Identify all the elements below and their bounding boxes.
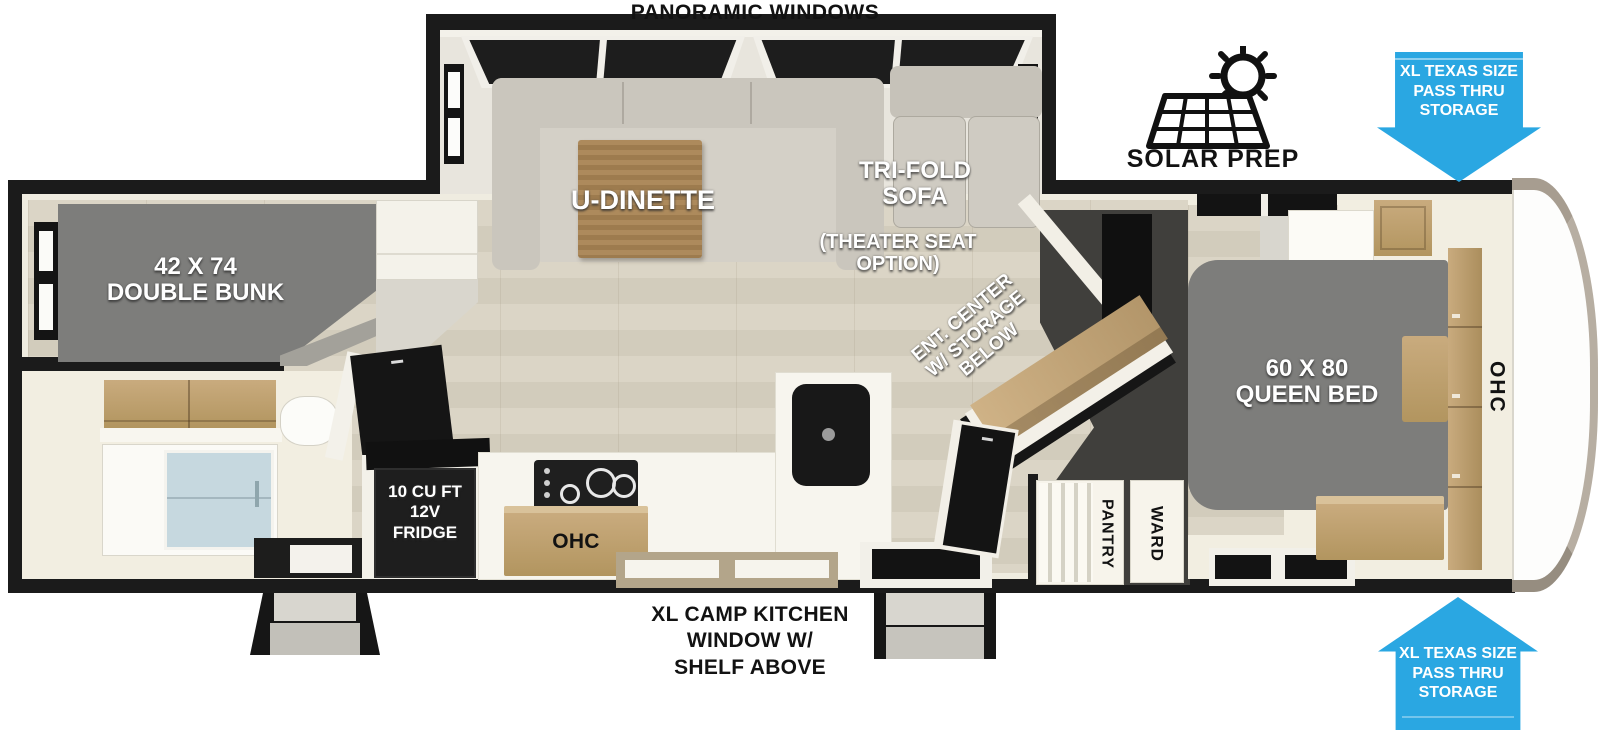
bed-console: [1402, 336, 1448, 422]
solar-panel-icon: [1145, 46, 1285, 150]
front-cap: [1512, 178, 1598, 592]
camp-kitchen-window: [616, 552, 838, 588]
u-dinette-label: U-DINETTE: [518, 186, 768, 216]
bedroom-vanity-side: [1260, 216, 1288, 264]
entry-steps-rear: [250, 593, 380, 655]
queen-bed-label: 60 X 80 QUEEN BED: [1207, 356, 1407, 409]
fridge-top: [366, 438, 491, 470]
cooktop: [534, 460, 638, 510]
bathroom-cabinets: [104, 380, 276, 428]
wall-top-left: [8, 180, 440, 194]
tri-fold-sofa-back: [890, 66, 1042, 118]
pantry-shelves: [1039, 483, 1093, 582]
bedroom-ohc-top: [1374, 200, 1432, 256]
bunk-window: [34, 222, 58, 340]
kitchen-sink: [792, 384, 870, 486]
bath-floor-mat: [254, 538, 370, 578]
ward-label: WARD: [1146, 491, 1167, 577]
pass-thru-top-label: XL TEXAS SIZE PASS THRU STORAGE: [1385, 62, 1533, 121]
wall-left: [8, 180, 22, 593]
pass-thru-bottom-label: XL TEXAS SIZE PASS THRU STORAGE: [1384, 644, 1532, 703]
faucet-icon: [822, 428, 835, 441]
bathroom-counter: [100, 428, 282, 442]
wall-top-right: [1042, 180, 1515, 194]
fridge-label-line1: 10 CU FT: [376, 482, 474, 502]
bedroom-vanity: [1288, 210, 1374, 266]
pantry: PANTRY: [1036, 480, 1124, 585]
theater-seat-option-label: (THEATER SEAT OPTION): [800, 231, 996, 275]
fridge-label-line3: FRIDGE: [376, 523, 474, 543]
bunk-cabinet: [376, 200, 478, 280]
camp-kitchen-label: XL CAMP KITCHEN WINDOW W/ SHELF ABOVE: [610, 602, 890, 681]
u-dinette-arm-left: [492, 78, 540, 270]
double-bunk-label: 42 X 74 DOUBLE BUNK: [93, 254, 298, 307]
entry-steps-main: [874, 593, 996, 659]
wardrobe: WARD: [1130, 480, 1184, 583]
shower-door: [164, 450, 274, 550]
kitchen-ohc-label: OHC: [504, 529, 648, 555]
bedroom-wardrobe-tall: [1448, 248, 1482, 570]
bedroom-dresser: [1316, 496, 1444, 560]
fridge-label-line2: 12V: [376, 502, 474, 522]
fridge: 10 CU FT 12V FRIDGE: [374, 468, 476, 578]
pantry-label: PANTRY: [1097, 487, 1117, 581]
bedroom-ohc-label: OHC: [1484, 352, 1510, 422]
slideout-side-window-left: [444, 64, 464, 164]
tri-fold-sofa-label: TRI-FOLD SOFA: [820, 158, 1010, 211]
panoramic-windows-label: PANORAMIC WINDOWS: [560, 0, 950, 26]
floorplan-canvas: 10 CU FT 12V FRIDGE OHC ENT. CENTER W/ S…: [0, 0, 1600, 730]
solar-prep-label: SOLAR PREP: [1098, 144, 1328, 175]
u-dinette-back: [492, 78, 884, 128]
